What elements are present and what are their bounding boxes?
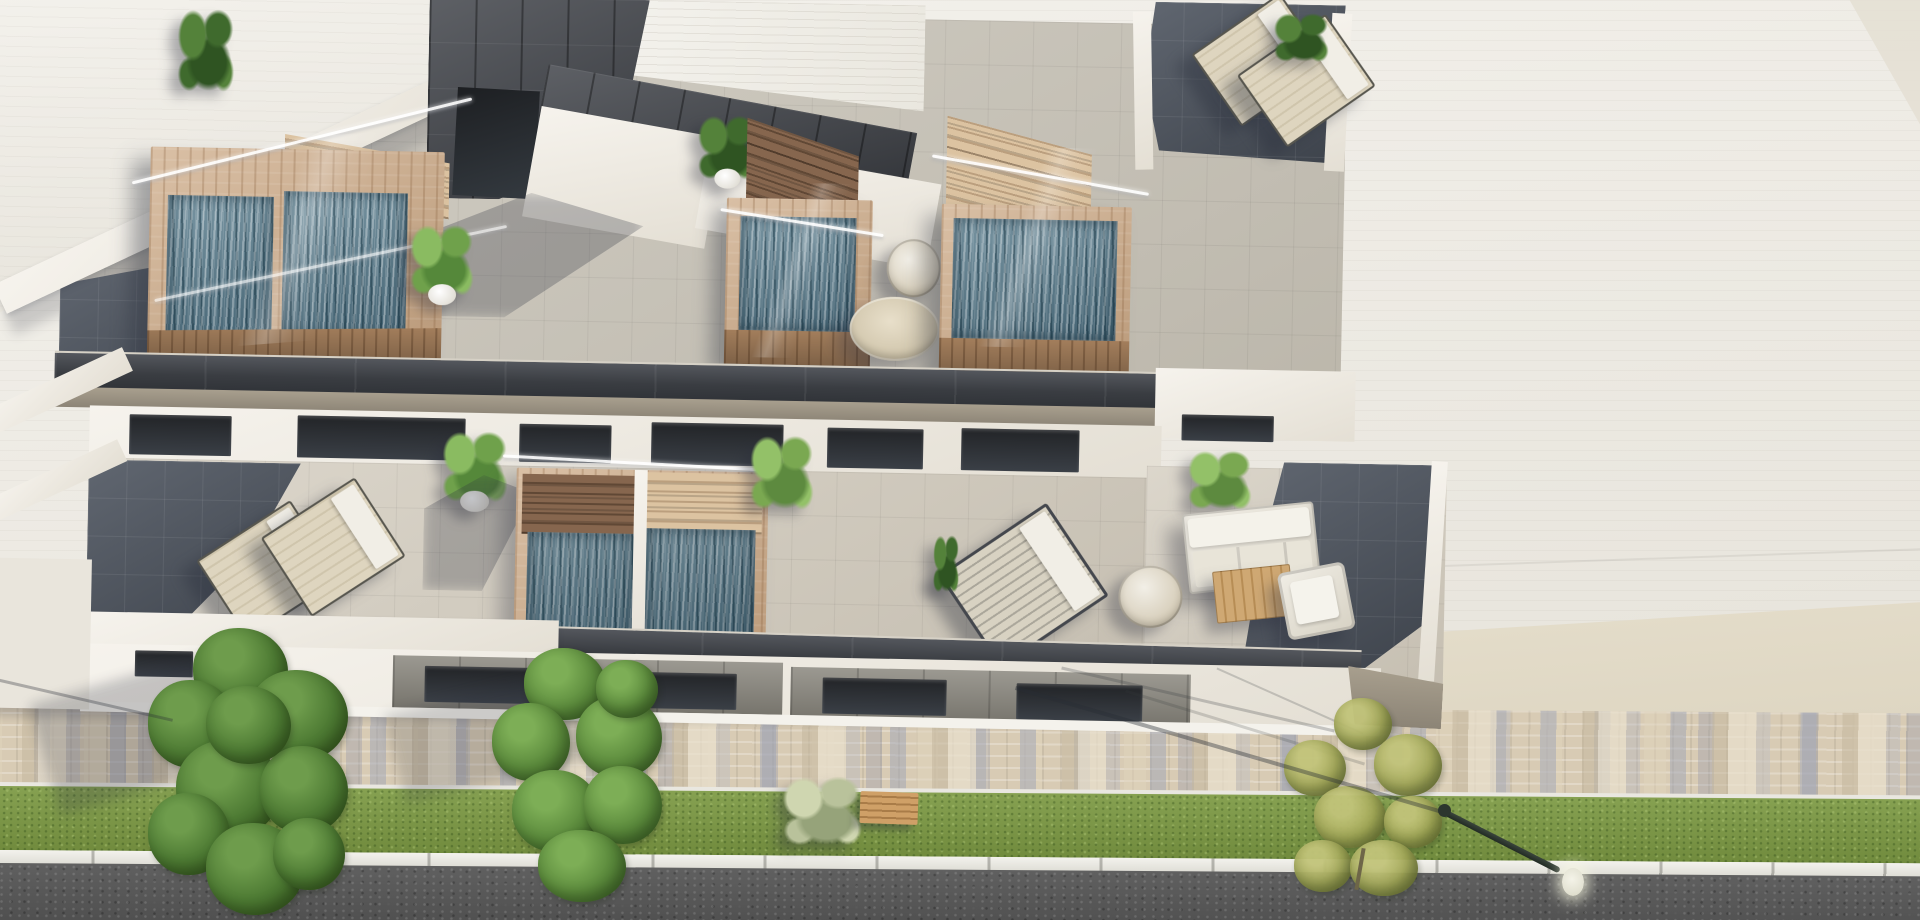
terrace-slim-plant [930, 530, 961, 599]
bulkhead-glass-door [452, 87, 540, 199]
west-end-base [0, 558, 92, 710]
roof-pool-unit-c [939, 204, 1132, 378]
terrace-door-glass [961, 428, 1080, 472]
foliage-blob [273, 818, 345, 890]
roof-agave-plant [404, 217, 480, 302]
pool-deck-dark [522, 474, 637, 536]
pool-front-cladding [724, 330, 871, 367]
end-unit-window [1181, 414, 1273, 442]
street-lamp-head [1562, 868, 1584, 896]
roof-pool-unit-a [147, 147, 445, 365]
foliage-blob [206, 686, 291, 764]
ground-floor-window [822, 678, 947, 716]
foliage-blob [538, 830, 626, 902]
terrace-sun-lounger [276, 499, 390, 595]
street-tree-large [148, 628, 353, 918]
architectural-render-scene [0, 0, 1920, 920]
foliage-blob [1374, 734, 1442, 796]
plunge-pool-water [165, 195, 274, 347]
ground-floor-window [1016, 683, 1143, 721]
plunge-pool-water [951, 218, 1117, 341]
wooden-bench [859, 791, 918, 825]
terrace-door-glass [129, 414, 232, 456]
ornamental-grass-clump [776, 770, 868, 852]
plunge-pool-water [738, 216, 856, 332]
foliage-blob [596, 660, 658, 718]
roof-potted-plant-left [172, 1, 240, 100]
terrace-palm-plant [744, 428, 820, 517]
plunge-pool-water [281, 191, 408, 339]
street-tree-medium [492, 648, 664, 903]
street-tree-olive [1272, 698, 1457, 903]
end-roof-plant [1269, 8, 1334, 67]
terrace-sun-lounger-gray [958, 528, 1090, 642]
end-roof-parapet-left [1133, 11, 1153, 169]
street-lamp-base [1438, 804, 1451, 817]
end-terrace-plant [1182, 444, 1257, 515]
outdoor-armchair [1277, 561, 1357, 641]
foliage-blob [1314, 786, 1386, 848]
terrace-door-glass [827, 428, 924, 470]
foliage-blob [1294, 840, 1352, 892]
